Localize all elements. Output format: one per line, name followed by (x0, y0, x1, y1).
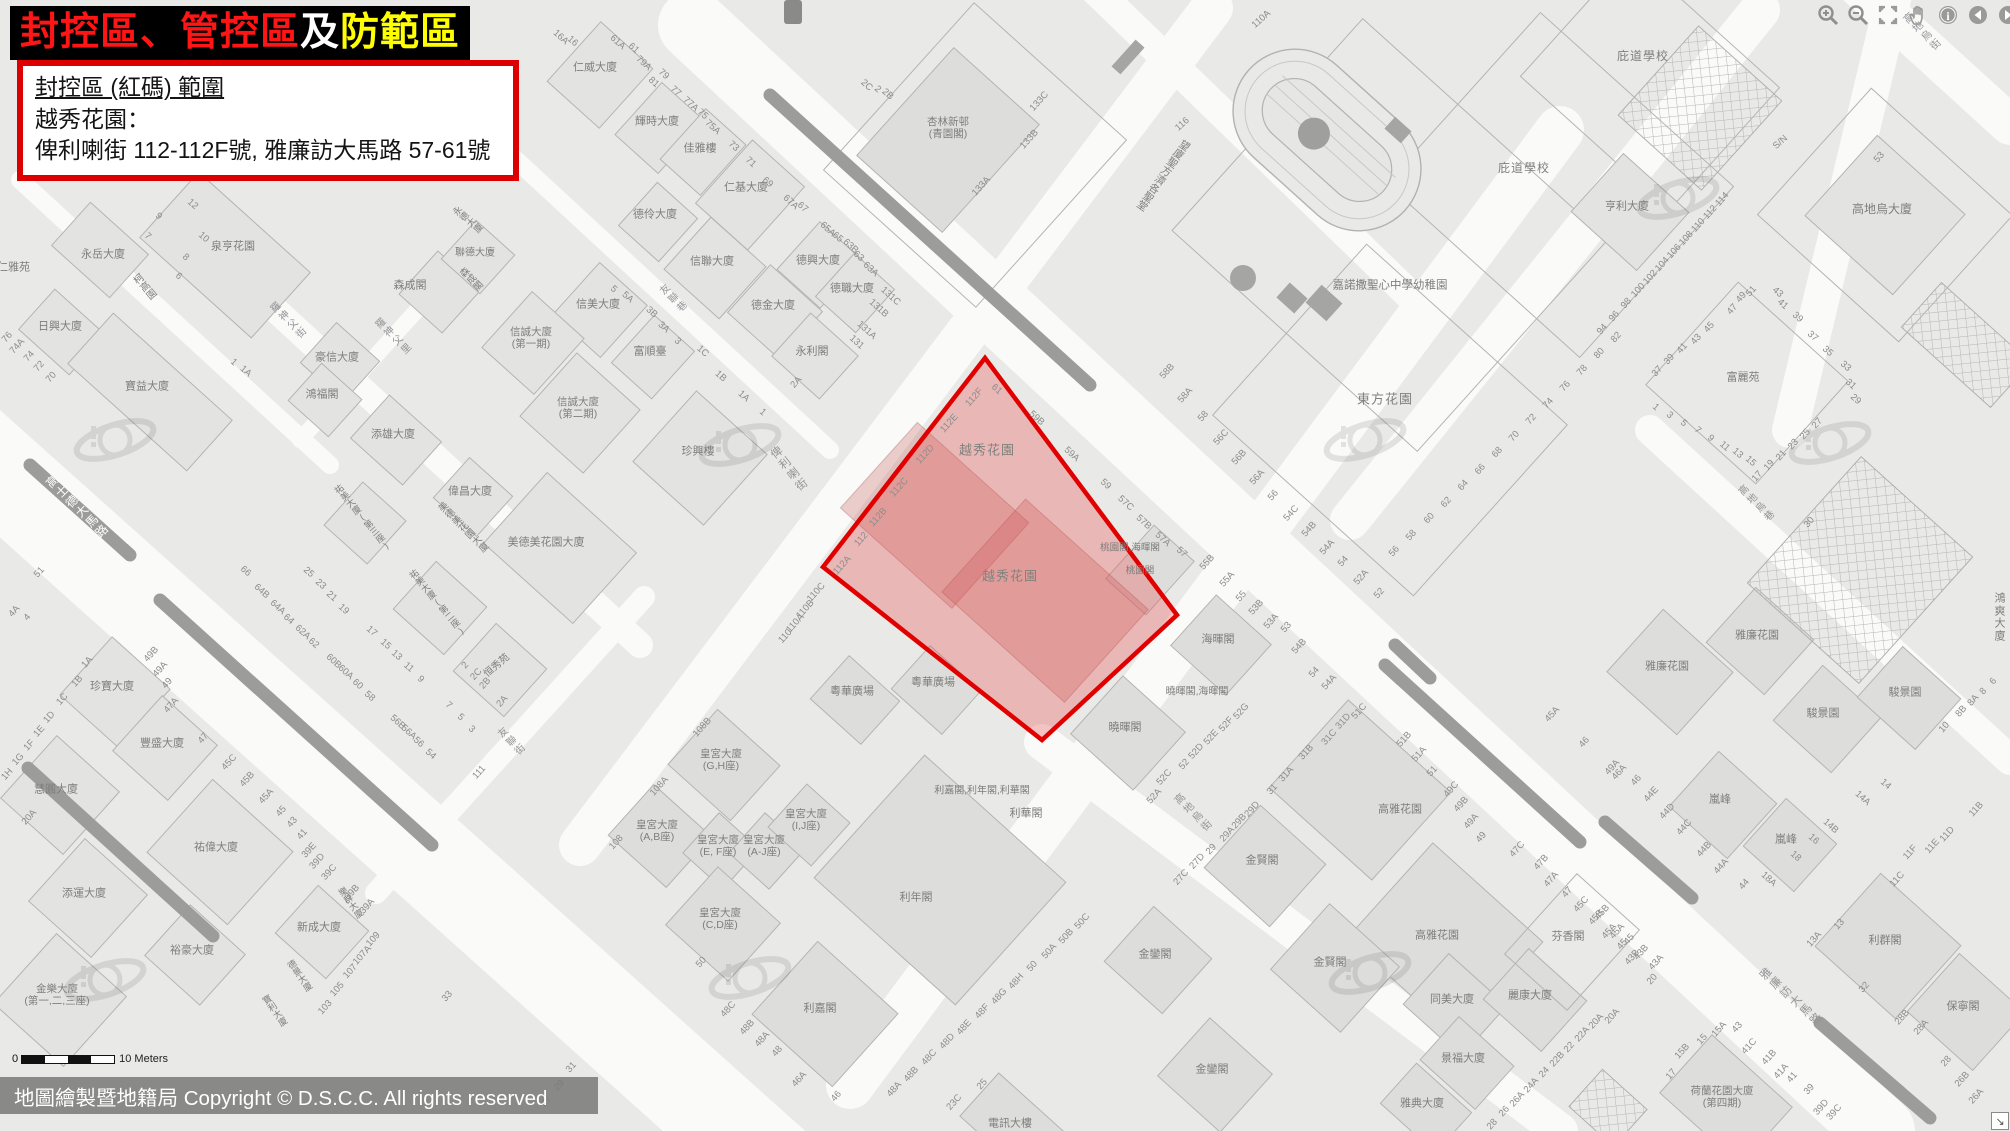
scale-start-label: 0 (12, 1053, 18, 1065)
scale-segments (21, 1055, 115, 1064)
copyright-bar: 地圖繪製暨地籍局 Copyright © D.S.C.C. All rights… (0, 1077, 598, 1114)
zoom-in-button[interactable] (1814, 4, 1841, 31)
identify-button[interactable]: i (1934, 4, 1961, 31)
full-extent-button[interactable] (1874, 4, 1901, 31)
info-line-heading: 封控區 (紅碼) 範圍 (35, 72, 503, 104)
scale-end-label: 10 Meters (119, 1053, 168, 1065)
identify-icon: i (1936, 3, 1960, 32)
title-part-2: 防範區 (340, 13, 460, 52)
scale-bar: 0 10 Meters (12, 1053, 168, 1065)
next-extent-icon (1996, 3, 2010, 32)
info-line-addresses: 俾利喇街 112-112F號, 雅廉訪大馬路 57-61號 (35, 135, 503, 167)
page-title: 封控區、管控區及防範區 (10, 6, 470, 60)
full-extent-icon (1876, 3, 1900, 32)
zoom-out-icon (1846, 3, 1870, 32)
map-toolbar: i (1814, 4, 2010, 31)
red-zone-info-box: 封控區 (紅碼) 範圍 越秀花園： 俾利喇街 112-112F號, 雅廉訪大馬路… (17, 60, 519, 181)
map-application: 仁威大廈輝時大廈佳雅樓仁基大廈德伶大廈信聯大廈德興大廈德金大廈德職大廈永利閣富順… (0, 0, 2010, 1131)
pan-button[interactable] (1904, 4, 1931, 31)
copyright-text: 地圖繪製暨地籍局 Copyright © D.S.C.C. All rights… (14, 1081, 547, 1111)
info-line-estate: 越秀花園： (35, 104, 503, 136)
title-part-1: 及 (300, 13, 340, 52)
zoom-in-icon (1816, 3, 1840, 32)
previous-extent-button[interactable] (1964, 4, 1991, 31)
pan-icon (1906, 3, 1930, 32)
resize-corner-icon[interactable]: ↘ (1991, 1112, 2009, 1130)
previous-extent-icon (1966, 3, 1990, 32)
next-extent-button[interactable] (1994, 4, 2010, 31)
title-part-0: 封控區、管控區 (20, 13, 300, 52)
zoom-out-button[interactable] (1844, 4, 1871, 31)
